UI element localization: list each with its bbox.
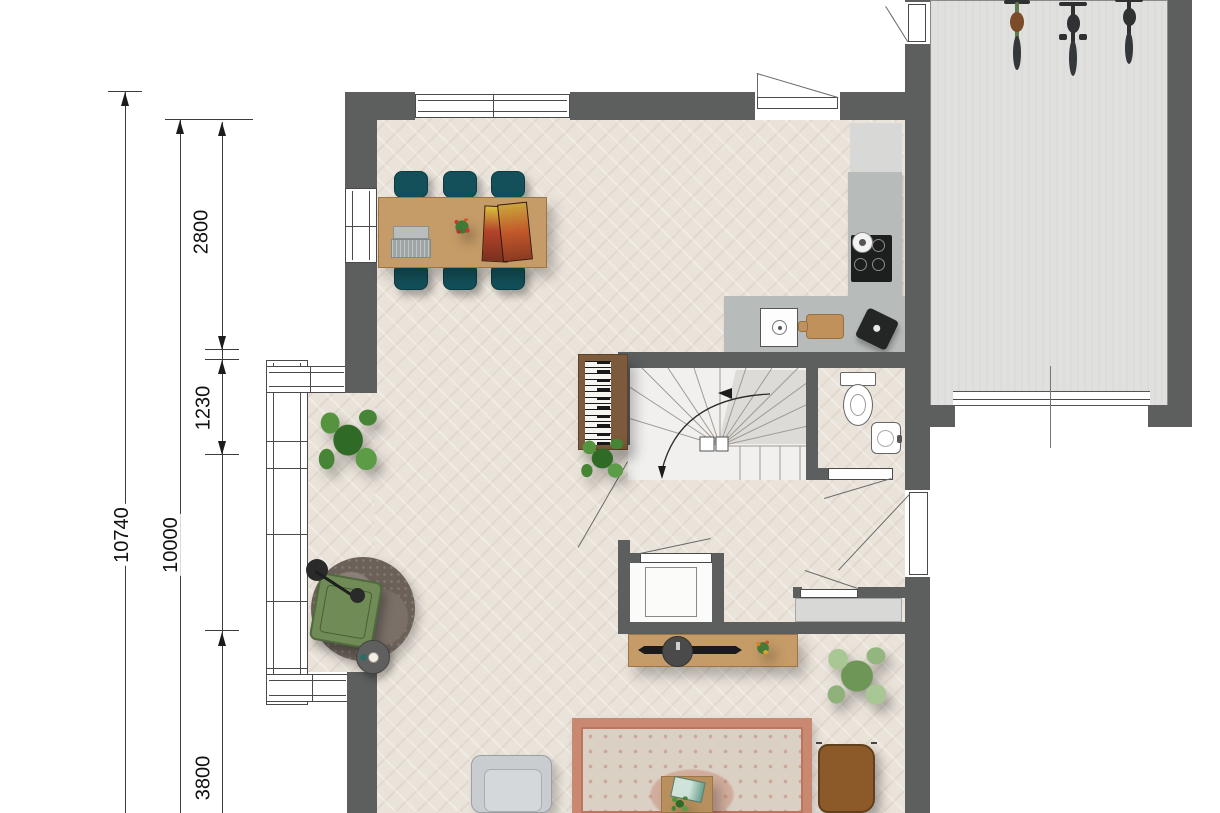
bay-window-tick	[267, 534, 307, 535]
staircase	[628, 368, 808, 480]
storage-cabinet	[645, 567, 697, 617]
wall-interior-bottom	[618, 622, 905, 634]
wc-door-leaf	[828, 468, 893, 480]
bicycle-pedal	[1059, 34, 1067, 40]
bicycle-pedal	[1079, 34, 1087, 40]
floor-lamp-head	[350, 588, 365, 603]
lounge-chair-brown	[818, 744, 875, 813]
cooktop	[851, 235, 892, 282]
dimension-line-chain	[222, 122, 223, 813]
magazine	[497, 202, 533, 263]
dimension-label-inner: 10000	[161, 514, 181, 576]
dimension-arrow	[121, 92, 129, 106]
small-plant	[668, 793, 692, 813]
garage-wall-bottom-left	[928, 405, 955, 427]
bay-window-tick	[267, 668, 307, 669]
storage-door-leaf	[640, 553, 712, 563]
teal-decor	[360, 654, 367, 661]
bicycle-saddle	[1123, 8, 1136, 26]
wall-right-upper	[905, 44, 930, 490]
dimension-arrow	[218, 441, 226, 455]
laptop-keyboard	[391, 239, 431, 258]
window-mullion-tick	[493, 95, 494, 117]
stair-newel-post	[700, 437, 714, 451]
flower-vase	[750, 635, 776, 661]
potted-plant-large	[306, 396, 392, 486]
kettle-lid	[859, 239, 866, 246]
closet-door-leaf	[800, 589, 858, 598]
kitchen-sink	[760, 308, 798, 347]
kettle-icon	[852, 232, 873, 253]
bicycle-icon	[1114, 0, 1144, 68]
cutting-board	[806, 314, 844, 339]
dimension-label-3800: 3800	[193, 753, 213, 804]
side-table	[356, 640, 390, 674]
cutting-board-handle	[798, 321, 808, 332]
garage-wall-right	[1168, 0, 1192, 427]
bay-window-mullion	[269, 680, 346, 696]
chair-foot	[871, 742, 877, 744]
dining-chair	[394, 171, 428, 198]
garage-door-centerline	[1050, 366, 1051, 448]
sofa-cushion	[484, 769, 542, 812]
floor-plan-canvas: 10740 10000 2800 1230 3800	[0, 0, 1220, 813]
bicycle-wheel	[1013, 36, 1021, 70]
dimension-label-1230: 1230	[193, 383, 213, 434]
garage-wall-bottom-right	[1148, 405, 1170, 427]
kitchen-tall-cabinet	[850, 123, 902, 172]
wall-top-right	[840, 92, 905, 120]
garage-side-door-leaf	[908, 4, 926, 42]
basin-faucet	[897, 435, 902, 443]
wall-wc-bottom-stub	[806, 468, 830, 480]
bay-window-tick	[310, 367, 311, 392]
dimension-tick	[205, 630, 239, 631]
toilet-bowl-inner	[850, 394, 866, 416]
dining-chair	[443, 171, 477, 198]
decor-disc	[662, 636, 693, 667]
wall-left-lower	[347, 672, 377, 813]
wall-top-middle	[570, 92, 755, 120]
bay-window-side	[266, 360, 308, 705]
garage-door	[953, 391, 1150, 406]
bay-window-tick	[267, 468, 307, 469]
cooktop-burner	[872, 239, 885, 252]
window-top	[415, 94, 570, 118]
wall-left-mid	[345, 263, 377, 393]
chair-foot	[816, 742, 822, 744]
entrance-door-leaf	[757, 97, 838, 109]
dimension-arrow	[218, 360, 226, 374]
front-door-leaf	[909, 492, 928, 575]
sofa	[471, 755, 552, 813]
wall-wc-left	[806, 368, 818, 480]
cooktop-burner	[872, 258, 885, 271]
bicycle-wheel	[1125, 32, 1133, 64]
bicycle-wheel	[1069, 40, 1077, 76]
sink-drain-dot	[778, 326, 782, 330]
window-mullion-tick	[346, 226, 376, 227]
garage-door-line	[953, 399, 1150, 400]
flower-bouquet	[448, 213, 476, 241]
stair-newel-post	[716, 437, 728, 451]
hall-closet	[795, 598, 902, 622]
wall-right-lower	[905, 577, 930, 813]
dining-chair	[491, 171, 525, 198]
garage-floor	[930, 0, 1168, 406]
armchair-green	[309, 572, 384, 650]
coffee-machine-button	[872, 324, 881, 333]
wall-kitchen-divider	[618, 352, 905, 368]
bay-window-mullion	[269, 372, 344, 387]
bicycle-saddle	[1067, 14, 1080, 33]
cooktop-burner	[854, 258, 867, 271]
wall-storage-top-stub	[618, 553, 640, 563]
wall-closet-stub-right	[858, 587, 905, 598]
laptop	[393, 226, 429, 239]
sink-drain	[772, 320, 787, 335]
dimension-line-inner	[180, 120, 181, 813]
potted-plant	[572, 430, 634, 488]
bicycle-icon	[1002, 0, 1032, 78]
bicycle-saddle	[1010, 12, 1024, 32]
potted-plant-sage	[814, 634, 900, 718]
wash-basin	[871, 422, 901, 454]
bay-window-tick	[312, 675, 313, 701]
dimension-label-2800: 2800	[191, 207, 211, 258]
dimension-arrow	[218, 336, 226, 350]
basin-bowl	[877, 430, 894, 447]
dimension-line-overall	[125, 92, 126, 813]
entrance-door-swing-edge	[757, 73, 758, 97]
bay-window-tick	[267, 441, 307, 442]
bay-window-mullion	[273, 363, 301, 702]
dimension-arrow	[218, 632, 226, 646]
coffee-cup	[368, 652, 379, 663]
dimension-label-overall: 10740	[112, 504, 132, 566]
bay-window-top	[266, 366, 347, 393]
dimension-arrow	[218, 122, 226, 136]
bay-window-tick	[267, 601, 307, 602]
toilet-bowl	[843, 384, 873, 426]
bicycle-icon	[1058, 0, 1088, 78]
decor-disc-mark	[676, 642, 680, 650]
bay-window-bottom	[266, 674, 349, 702]
wall-left-upper	[345, 92, 377, 188]
window-left-dining	[345, 188, 377, 263]
dimension-arrow	[176, 120, 184, 134]
